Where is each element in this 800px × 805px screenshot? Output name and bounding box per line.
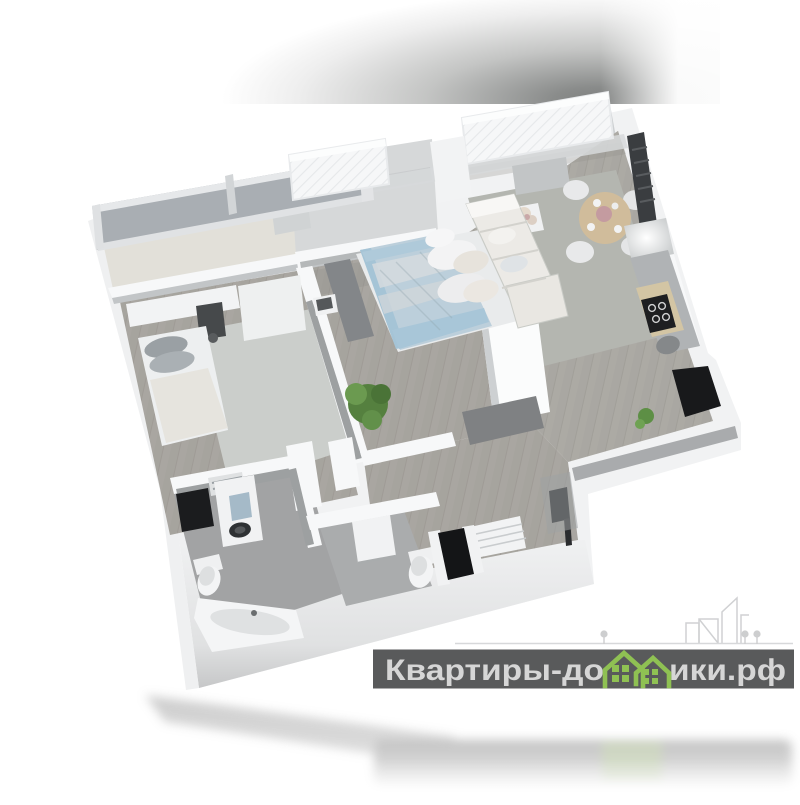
svg-text:ики.рф: ики.рф (669, 654, 786, 687)
svg-text:Квартиры-до: Квартиры-до (385, 654, 604, 687)
